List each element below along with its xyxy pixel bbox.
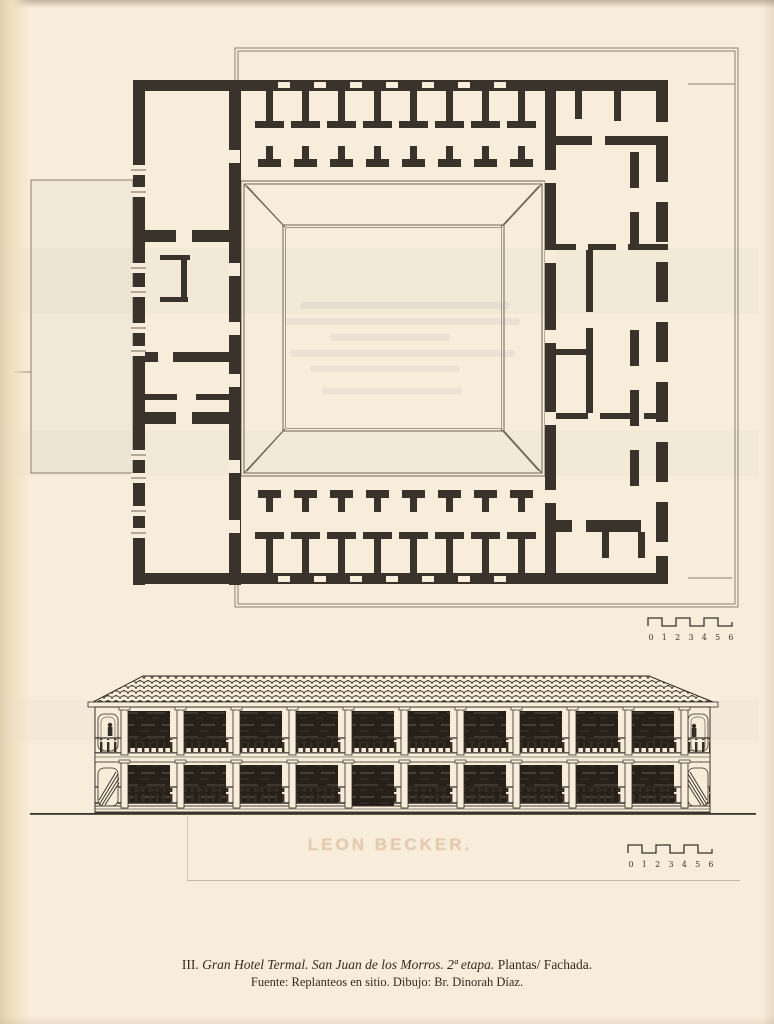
- central-entrance: [352, 765, 394, 808]
- page-top-edge-shadow: [0, 0, 774, 8]
- scale-number: 1: [659, 633, 669, 642]
- ground-line: [30, 813, 756, 815]
- caption-figure-number: III.: [182, 957, 199, 972]
- tiled-roof: [93, 676, 713, 702]
- floor-plan-drawing: [0, 48, 738, 607]
- scale-number: 5: [693, 860, 703, 869]
- caption-title-rest: Plantas/ Fachada.: [498, 957, 592, 972]
- bottom-wing-partitions: [255, 490, 536, 573]
- scale-bar-numbers: 0 1 2 3 4 5 6: [646, 633, 736, 642]
- scale-number: 2: [653, 860, 663, 869]
- plan-scale-bar: 0 1 2 3 4 5 6: [646, 614, 738, 642]
- scanned-book-page: 0 1 2 3 4 5 6 0 1 2 3 4 5 6 LEON BECKER.…: [0, 0, 774, 1024]
- scale-number: 6: [726, 633, 736, 642]
- caption-title-italic: Gran Hotel Termal. San Juan de los Morro…: [202, 957, 494, 972]
- scale-number: 5: [713, 633, 723, 642]
- scale-number: 4: [679, 860, 689, 869]
- page-bottom-edge-shadow: [0, 1016, 774, 1024]
- architectural-drawing: [0, 0, 774, 1024]
- scale-number: 0: [646, 633, 656, 642]
- scale-number: 3: [666, 860, 676, 869]
- scale-number: 4: [699, 633, 709, 642]
- scale-number: 3: [686, 633, 696, 642]
- scale-bar-crenellation: [646, 614, 736, 627]
- scale-number: 0: [626, 860, 636, 869]
- scale-bar-numbers: 0 1 2 3 4 5 6: [626, 860, 716, 869]
- bleed-through-smudges: [285, 302, 520, 394]
- caption-title-line: III. Gran Hotel Termal. San Juan de los …: [0, 956, 774, 974]
- caption-source-line: Fuente: Replanteos en sitio. Dibujo: Br.…: [0, 974, 774, 990]
- facade-scale-bar: 0 1 2 3 4 5 6: [626, 841, 718, 869]
- scale-number: 2: [673, 633, 683, 642]
- facade-elevation-drawing: [30, 676, 756, 815]
- bleed-through-text: LEON BECKER.: [300, 835, 480, 855]
- left-wing-rooms: [145, 80, 241, 585]
- bleed-through-rule: [188, 880, 740, 881]
- scale-number: 1: [639, 860, 649, 869]
- figure-caption: III. Gran Hotel Termal. San Juan de los …: [0, 956, 774, 990]
- roof-fascia: [88, 702, 718, 707]
- top-wing-partitions: [255, 91, 536, 167]
- scale-bar-crenellation: [626, 841, 716, 854]
- page-right-edge-shadow: [762, 0, 774, 1024]
- page-left-edge-shadow: [0, 0, 30, 1024]
- scale-number: 6: [706, 860, 716, 869]
- right-wing-rooms: [545, 91, 668, 573]
- courtyard: [241, 181, 545, 476]
- bleed-through-rule-vertical: [187, 816, 188, 882]
